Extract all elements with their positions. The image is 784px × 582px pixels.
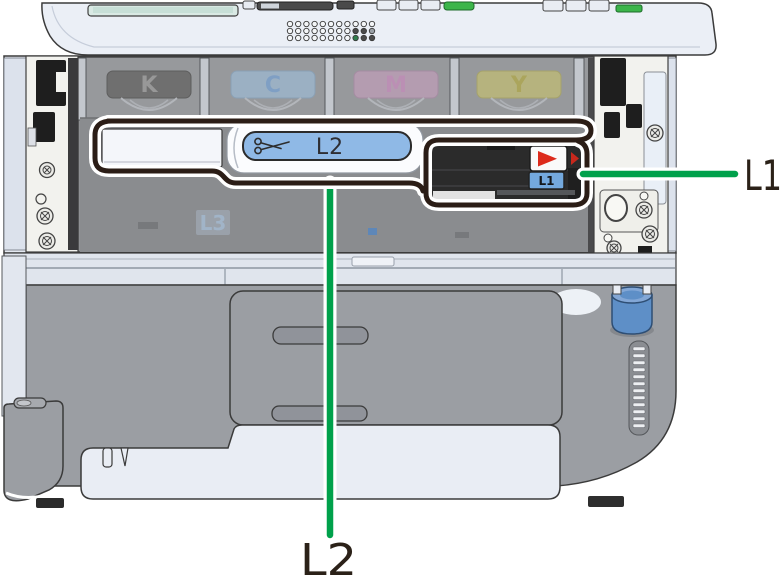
knob-notch	[643, 285, 651, 294]
ribbed-strip	[629, 341, 649, 435]
cartridge-rail	[574, 58, 584, 120]
top-key	[543, 0, 563, 11]
green-indicator	[616, 5, 642, 12]
printer-illustration: K C M Y	[0, 0, 784, 582]
knob-top-inner	[620, 291, 644, 300]
unit-white-strip	[433, 191, 495, 200]
mid-band-plate	[4, 253, 676, 285]
cartridge-rail	[200, 58, 209, 120]
pin-hole	[604, 234, 612, 242]
top-slot-insert	[261, 4, 279, 9]
transfer-unit: L1	[429, 142, 585, 206]
interior-label-l3: L3	[200, 211, 227, 235]
corner-cover	[4, 401, 63, 501]
top-cover	[42, 0, 716, 55]
blue-knob	[610, 285, 654, 337]
interior-blue-mark	[368, 228, 377, 235]
callout-text-l1: L1	[744, 151, 782, 200]
top-key	[421, 0, 440, 10]
top-key	[589, 0, 609, 11]
left-inner-panel	[26, 56, 78, 252]
screw-icon	[39, 233, 55, 249]
left-edge-strip	[4, 58, 26, 250]
door-handle-recess	[272, 406, 367, 421]
mid-band	[4, 253, 676, 285]
cartridge-rail	[325, 58, 334, 120]
foot	[36, 498, 64, 508]
front-door	[230, 291, 562, 425]
cartridge-rail	[450, 58, 459, 120]
top-button	[243, 1, 255, 9]
screw-icon	[636, 202, 652, 218]
right-edge-strip	[668, 58, 676, 251]
screw-icon	[40, 163, 55, 178]
pin-hole	[36, 194, 46, 204]
pin-hole	[640, 192, 648, 200]
unit-label-l1-text: L1	[539, 174, 555, 188]
right-latch-small	[604, 112, 620, 138]
top-key	[566, 0, 586, 11]
foot	[588, 496, 624, 507]
unit-gray-strip	[497, 190, 575, 195]
bottom-left-corner	[4, 398, 64, 508]
top-key	[377, 0, 396, 10]
left-tab	[28, 128, 36, 146]
right-latch-small	[626, 104, 642, 128]
button-grid	[287, 21, 374, 40]
label-strip-l2-text: L2	[316, 135, 344, 160]
green-indicator	[444, 2, 474, 10]
interior-detail	[138, 222, 158, 229]
interior-detail	[455, 232, 469, 238]
right-inner-panel	[588, 56, 668, 262]
display-window-glass	[93, 7, 233, 13]
mid-band-vent	[352, 257, 394, 266]
toner-letter-c: C	[265, 73, 281, 98]
screw-icon	[37, 208, 53, 224]
cartridge-rail	[78, 58, 86, 120]
corner-handle-grip	[17, 400, 31, 406]
lower-body	[2, 256, 676, 508]
door-handle-recess	[273, 327, 368, 344]
toner-letter-k: K	[140, 73, 158, 98]
left-panel-gap	[68, 58, 78, 250]
left-latch-notch	[56, 72, 66, 92]
screw-icon	[647, 125, 663, 141]
button-grid-row	[287, 35, 374, 40]
top-slot-small	[337, 1, 354, 9]
toner-letter-m: M	[385, 73, 407, 98]
button-grid-row	[287, 21, 374, 26]
callout-text-l2: L2	[300, 535, 357, 582]
left-side-strip	[2, 256, 26, 416]
button-grid-row	[287, 28, 374, 33]
tray-tab	[103, 448, 112, 467]
knob-notch	[613, 285, 621, 294]
roller-hole	[605, 195, 627, 221]
top-key	[399, 0, 418, 10]
toner-letter-y: Y	[510, 73, 528, 98]
right-latch	[600, 58, 626, 106]
screw-icon	[642, 226, 658, 242]
printer-diagram: K C M Y	[0, 0, 784, 582]
